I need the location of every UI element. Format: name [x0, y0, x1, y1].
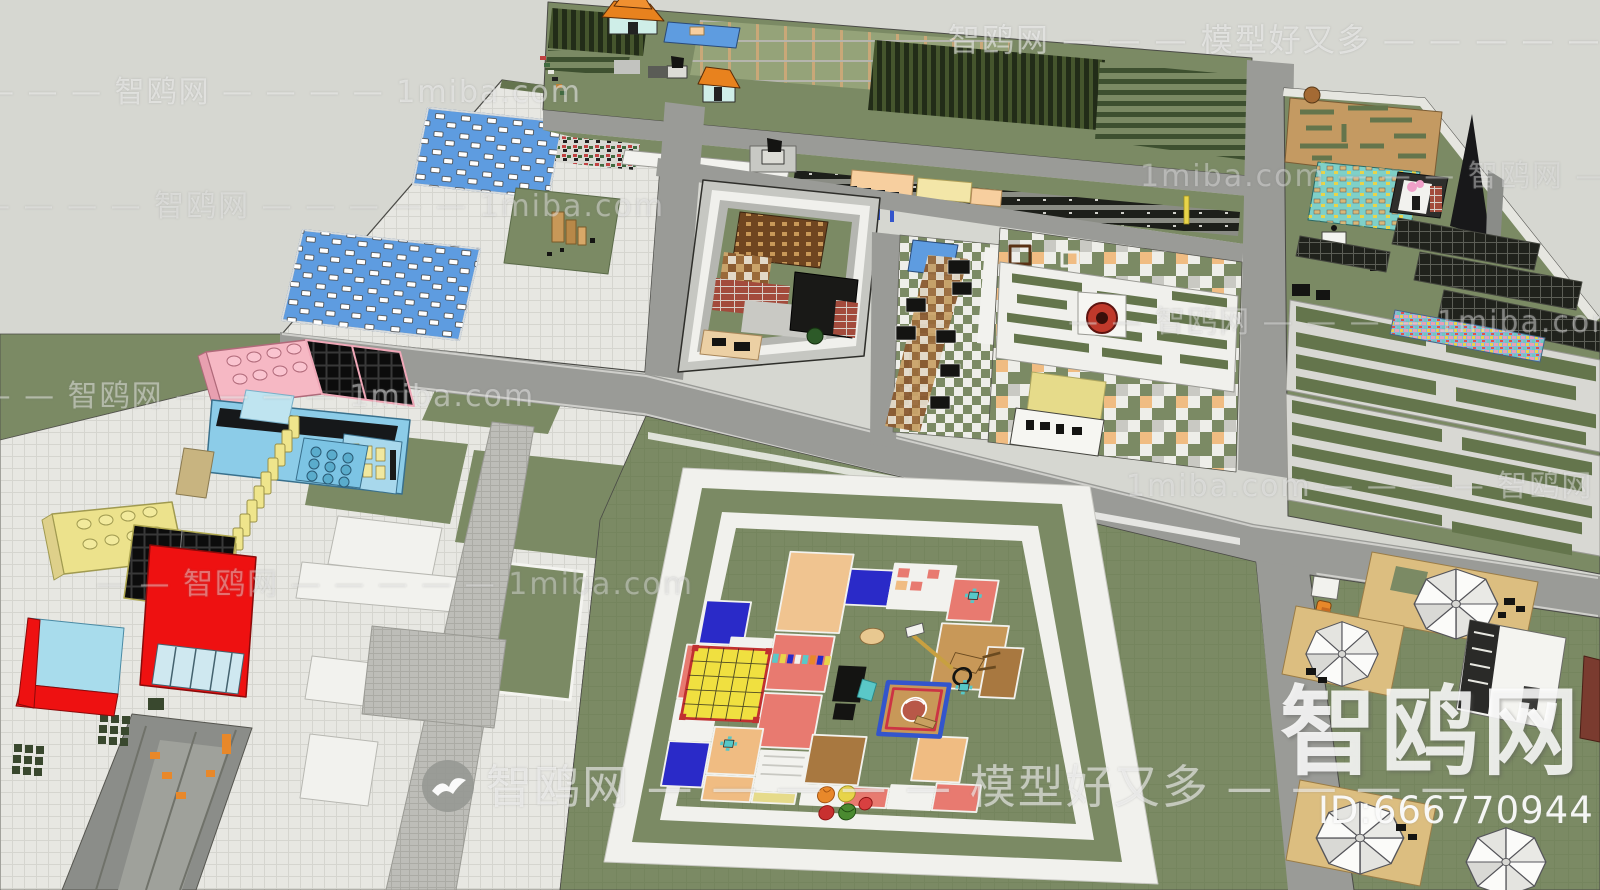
courtyard-block — [678, 180, 880, 372]
dark-green-pad — [148, 698, 164, 710]
round-fountain — [1078, 292, 1126, 337]
dark-green-grid-1 — [12, 744, 44, 776]
yellow-pole — [1184, 196, 1189, 224]
cobble-court — [362, 626, 506, 728]
red-lego-building — [140, 545, 256, 697]
swimming-pool-lower — [282, 230, 480, 340]
cylinder-sculpture — [1304, 87, 1320, 103]
east-section — [1283, 87, 1600, 574]
garden-block — [988, 228, 1242, 472]
market-street-zone — [885, 235, 1003, 440]
yellow-climb-canopy — [679, 645, 773, 724]
teepee-tent-2 — [1306, 622, 1378, 687]
central-playground-plaza — [604, 468, 1158, 884]
sand-pit — [878, 682, 949, 737]
site-plan — [0, 0, 1600, 890]
sign-board — [1311, 576, 1340, 599]
sculpture-lawn — [504, 188, 620, 274]
paved-slab-3 — [305, 656, 372, 706]
teepee-tent-3 — [1316, 802, 1403, 874]
maroon-kiosk — [1580, 656, 1600, 742]
pagoda-house-1 — [602, 0, 664, 34]
dark-green-grid-2 — [98, 714, 130, 746]
paved-slab-4 — [300, 734, 378, 806]
flower-shop — [1390, 172, 1448, 218]
tree — [807, 328, 823, 344]
3d-model-render — [0, 0, 1600, 890]
swimming-pool-upper — [413, 108, 563, 198]
model-viewport[interactable] — [0, 0, 1600, 890]
stud-hole-wall — [296, 438, 368, 488]
camper-trailer — [1456, 620, 1566, 730]
kiddie-pool-walls — [16, 618, 124, 716]
teepee-tent-4 — [1466, 828, 1546, 890]
dark-pavilion — [790, 272, 858, 338]
